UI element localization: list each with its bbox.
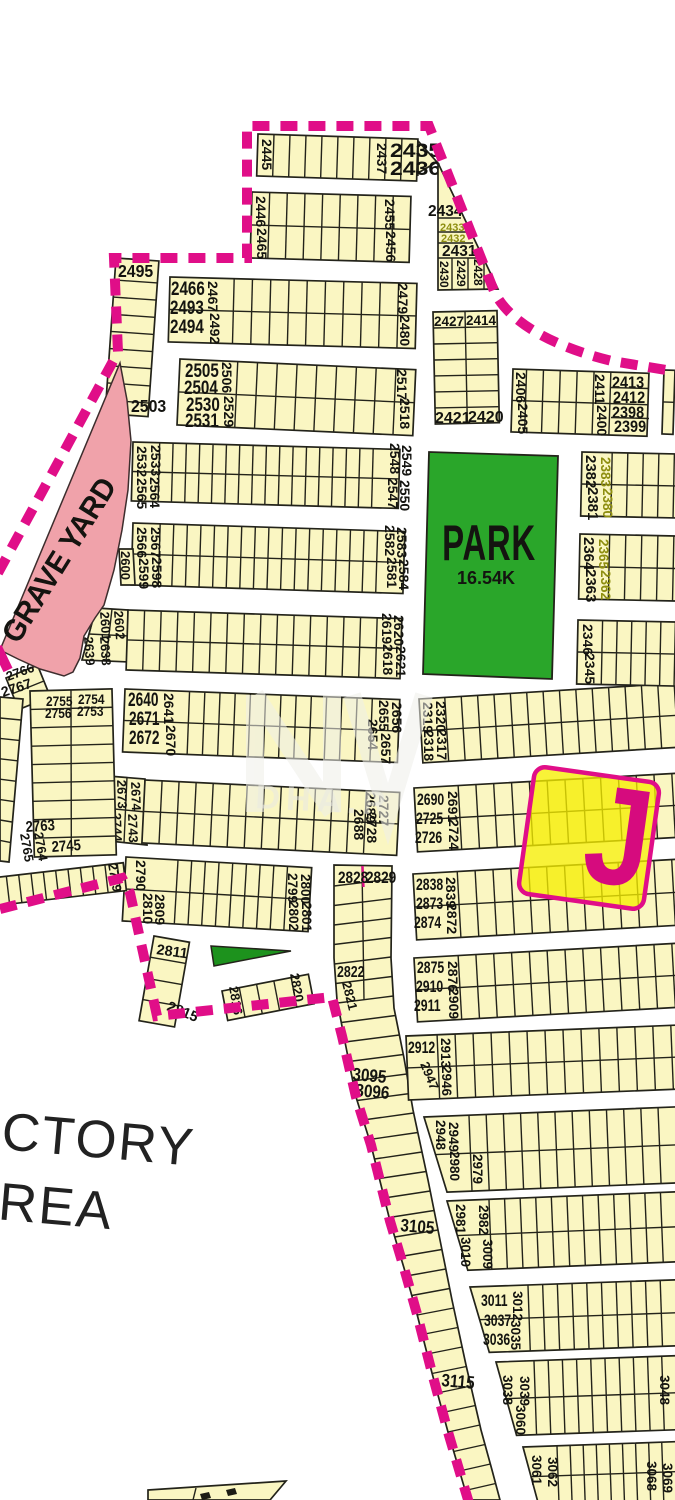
svg-text:2456: 2456: [383, 231, 399, 262]
svg-text:2584: 2584: [396, 559, 412, 590]
svg-text:2912: 2912: [408, 1039, 435, 1057]
svg-text:2875: 2875: [417, 959, 444, 977]
svg-text:3096: 3096: [355, 1080, 391, 1103]
svg-text:2406: 2406: [513, 372, 529, 403]
svg-text:2566: 2566: [134, 527, 150, 558]
svg-text:2600: 2600: [118, 551, 133, 580]
svg-text:2982: 2982: [476, 1205, 491, 1235]
svg-text:2420: 2420: [468, 409, 504, 426]
svg-text:2670: 2670: [163, 725, 179, 756]
svg-text:2674: 2674: [128, 782, 144, 812]
svg-text:2638: 2638: [97, 636, 114, 666]
svg-text:2320: 2320: [433, 701, 449, 732]
svg-text:2531: 2531: [185, 409, 219, 431]
svg-text:2480: 2480: [397, 315, 413, 346]
svg-text:2427: 2427: [434, 314, 464, 329]
svg-text:2400: 2400: [594, 405, 610, 436]
svg-text:2790: 2790: [133, 860, 149, 891]
svg-text:2495: 2495: [118, 261, 153, 281]
svg-text:2598: 2598: [149, 557, 165, 588]
svg-text:3010: 3010: [458, 1237, 473, 1267]
svg-text:2620: 2620: [391, 615, 407, 646]
svg-text:2445: 2445: [259, 139, 275, 170]
svg-text:3115: 3115: [441, 1370, 476, 1393]
svg-text:3012: 3012: [510, 1291, 525, 1321]
svg-text:2567: 2567: [148, 527, 164, 558]
svg-text:2828: 2828: [338, 869, 369, 888]
svg-text:3068: 3068: [644, 1461, 659, 1492]
svg-text:3011: 3011: [481, 1292, 508, 1310]
svg-text:2641: 2641: [161, 693, 177, 724]
svg-text:2726: 2726: [415, 829, 442, 847]
svg-text:2467: 2467: [205, 281, 221, 312]
svg-text:3061: 3061: [529, 1455, 544, 1486]
svg-text:2381: 2381: [584, 487, 601, 520]
svg-text:2436: 2436: [390, 158, 441, 180]
svg-text:2383: 2383: [598, 457, 613, 488]
svg-text:2364: 2364: [580, 537, 597, 571]
svg-text:2430: 2430: [437, 261, 451, 288]
svg-text:3048: 3048: [657, 1375, 672, 1406]
svg-text:2810: 2810: [140, 893, 156, 924]
svg-text:2365: 2365: [596, 539, 611, 570]
svg-text:2799: 2799: [285, 873, 300, 903]
svg-text:2399: 2399: [614, 418, 646, 436]
svg-text:2913: 2913: [438, 1038, 453, 1069]
svg-text:2909: 2909: [446, 988, 462, 1019]
svg-text:3105: 3105: [400, 1215, 436, 1238]
svg-text:2725: 2725: [416, 810, 443, 828]
svg-text:2465: 2465: [254, 228, 270, 259]
svg-text:3009: 3009: [480, 1239, 495, 1269]
svg-text:2479: 2479: [395, 283, 411, 314]
svg-text:2518: 2518: [397, 398, 413, 429]
svg-text:2621: 2621: [393, 646, 409, 677]
svg-text:2550: 2550: [397, 480, 413, 511]
svg-text:2411: 2411: [592, 374, 608, 405]
svg-text:16.54K: 16.54K: [457, 568, 515, 588]
svg-text:2800: 2800: [298, 874, 313, 904]
svg-text:2673: 2673: [114, 780, 130, 809]
svg-text:2446: 2446: [253, 196, 269, 227]
svg-text:2872: 2872: [444, 903, 460, 934]
svg-text:2437: 2437: [374, 143, 390, 174]
svg-text:2431: 2431: [442, 243, 477, 260]
svg-text:PARK: PARK: [442, 515, 536, 570]
svg-text:AREA: AREA: [0, 1169, 116, 1241]
svg-text:2533: 2533: [148, 445, 164, 476]
svg-text:2672: 2672: [129, 727, 159, 749]
svg-text:2382: 2382: [582, 455, 599, 488]
svg-text:2822: 2822: [337, 963, 365, 981]
svg-text:2801: 2801: [299, 902, 314, 933]
svg-text:2362: 2362: [598, 570, 613, 600]
svg-text:3039: 3039: [517, 1376, 532, 1406]
svg-text:2583: 2583: [394, 527, 410, 558]
svg-text:2492: 2492: [207, 313, 223, 344]
svg-text:2910: 2910: [416, 978, 443, 996]
svg-text:2532: 2532: [134, 446, 150, 477]
svg-text:2949: 2949: [446, 1122, 461, 1152]
svg-text:2911: 2911: [414, 997, 441, 1015]
svg-text:3036: 3036: [483, 1331, 510, 1349]
svg-text:3035: 3035: [508, 1320, 523, 1351]
svg-text:2981: 2981: [453, 1204, 468, 1235]
svg-text:2494: 2494: [170, 315, 204, 337]
svg-text:2429: 2429: [454, 260, 468, 287]
svg-text:2345: 2345: [582, 653, 598, 684]
svg-text:2529: 2529: [221, 396, 237, 427]
svg-text:2602: 2602: [111, 610, 128, 640]
svg-text:2455: 2455: [382, 199, 398, 230]
svg-text:2802: 2802: [286, 901, 301, 931]
svg-text:2756: 2756: [45, 705, 71, 721]
svg-text:2838: 2838: [416, 876, 443, 894]
svg-text:2946: 2946: [439, 1066, 454, 1097]
svg-text:2724: 2724: [446, 819, 462, 850]
svg-text:2421: 2421: [435, 410, 471, 427]
svg-text:2745: 2745: [51, 837, 81, 856]
svg-text:2979: 2979: [470, 1154, 485, 1184]
svg-text:2829: 2829: [366, 869, 396, 888]
svg-text:2503: 2503: [131, 396, 166, 416]
svg-text:2564: 2564: [147, 477, 163, 508]
svg-text:2980: 2980: [447, 1151, 462, 1181]
svg-text:2873: 2873: [416, 895, 443, 913]
svg-text:2874: 2874: [414, 914, 442, 932]
svg-text:2743: 2743: [125, 814, 141, 843]
svg-text:3060: 3060: [513, 1405, 528, 1435]
svg-text:2517: 2517: [394, 369, 410, 400]
svg-text:2317: 2317: [434, 729, 450, 760]
svg-text:3062: 3062: [545, 1457, 560, 1487]
svg-text:DHA.P: DHA.P: [255, 778, 393, 823]
svg-text:3069: 3069: [660, 1463, 675, 1493]
svg-text:2363: 2363: [582, 569, 599, 602]
svg-text:2380: 2380: [600, 488, 615, 518]
svg-text:2753: 2753: [77, 703, 103, 719]
svg-text:2405: 2405: [515, 403, 531, 434]
svg-text:3037: 3037: [484, 1312, 511, 1330]
svg-text:3038: 3038: [500, 1375, 515, 1406]
svg-text:2346: 2346: [580, 624, 596, 655]
svg-text:2690: 2690: [417, 791, 444, 809]
svg-text:2656: 2656: [389, 702, 405, 733]
svg-text:2549: 2549: [399, 445, 415, 476]
svg-text:2506: 2506: [219, 362, 235, 393]
svg-text:2948: 2948: [433, 1120, 448, 1151]
svg-text:2691: 2691: [445, 791, 461, 822]
svg-text:2414: 2414: [466, 313, 497, 328]
